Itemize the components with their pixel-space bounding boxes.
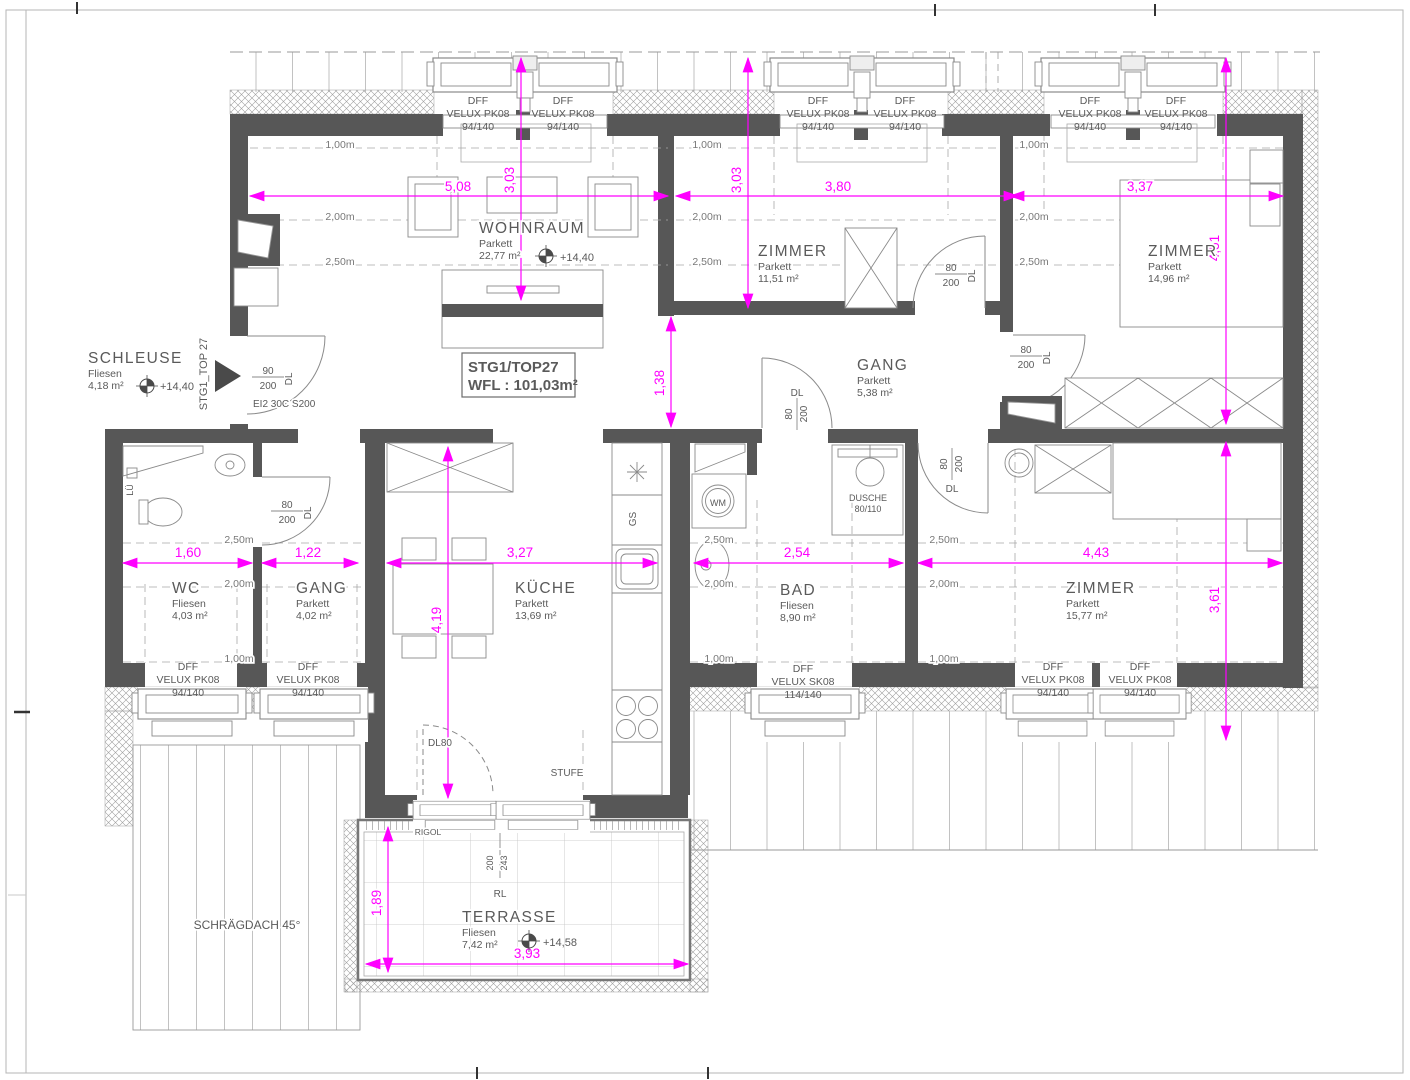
height-contour-label: 1,00m <box>1019 139 1048 151</box>
room-name: ZIMMER <box>758 243 828 260</box>
room-name: SCHLEUSE <box>88 350 183 367</box>
door-height: 200 <box>260 381 277 392</box>
height-contour-label: 2,50m <box>1019 256 1048 268</box>
dim-value: 4,19 <box>429 607 444 633</box>
window-label-line: VELUX PK08 <box>873 108 936 120</box>
room-label-zimmer-9: ZIMMERParkett15,77 m² <box>1066 580 1136 622</box>
room-label-kche-7: KÜCHEParkett13,69 m² <box>515 579 576 622</box>
door-height: 200 <box>799 405 810 422</box>
room-floor: Parkett <box>1148 261 1181 273</box>
room-area: 13,69 m² <box>515 610 557 622</box>
misc-label-12: 243 <box>499 855 509 870</box>
window-label-line: VELUX PK08 <box>276 674 339 686</box>
room-floor: Parkett <box>1066 598 1099 610</box>
room-area: 4,02 m² <box>296 610 332 622</box>
room-area: 8,90 m² <box>780 612 816 624</box>
window-label-line: DFF <box>298 661 318 673</box>
room-floor: Fliesen <box>462 927 496 939</box>
misc-label-7: LÜ <box>125 484 135 496</box>
room-label-zimmer-1: ZIMMERParkett11,51 m² <box>758 243 828 285</box>
height-contour-label: 2,50m <box>692 256 721 268</box>
room-area: 15,77 m² <box>1066 610 1108 622</box>
window-label-line: DFF <box>1130 661 1150 673</box>
room-floor: Fliesen <box>88 368 122 380</box>
room-area: 4,03 m² <box>172 610 208 622</box>
room-area: 7,42 m² <box>462 939 498 951</box>
room-floor: Parkett <box>857 375 890 387</box>
door-tag-2: 80200DL <box>935 263 978 289</box>
height-contour-label: 1,00m <box>704 653 733 665</box>
dim-v-3: 1,38 <box>652 317 671 427</box>
window-label-line: VELUX PK08 <box>446 108 509 120</box>
door-width: 80 <box>784 408 795 420</box>
door-width: 90 <box>262 366 274 377</box>
room-name: BAD <box>780 582 816 599</box>
window-label-line: 94/140 <box>1037 687 1069 699</box>
misc-label-8: STUFE <box>551 768 584 779</box>
door-type: DL <box>946 484 959 495</box>
window-label-line: VELUX PK08 <box>786 108 849 120</box>
window-label-line: DFF <box>553 95 573 107</box>
title-box: STG1/TOP27 WFL : 101,03m² <box>462 353 578 397</box>
door-height: 200 <box>279 515 296 526</box>
window-label-line: 94/140 <box>462 121 494 133</box>
room-floor: Parkett <box>296 598 329 610</box>
window-label-line: DFF <box>468 95 488 107</box>
unit-area: WFL : 101,03m² <box>468 377 578 394</box>
room-floor: Parkett <box>515 598 548 610</box>
misc-label-4: 80/110 <box>855 504 882 514</box>
door-type: DL <box>303 506 314 519</box>
dim-value: 3,61 <box>1207 587 1222 613</box>
room-name: GANG <box>857 357 908 374</box>
wc-fixtures <box>123 446 245 526</box>
window-label-line: VELUX PK08 <box>1058 108 1121 120</box>
door-type: DL <box>791 388 804 399</box>
window-label-line: 114/140 <box>784 689 821 701</box>
window-label-line: 94/140 <box>802 121 834 133</box>
door-type: DL <box>1042 351 1053 364</box>
level-value: +14,40 <box>160 381 194 393</box>
height-contour-label: 1,00m <box>325 139 354 151</box>
window-label-line: DFF <box>1080 95 1100 107</box>
window-label-line: DFF <box>178 661 198 673</box>
schraegdach-area <box>133 745 360 1030</box>
level-value: +14,58 <box>543 937 577 949</box>
door-tag-3: 80200DL <box>1010 345 1053 371</box>
height-contour-label: 2,00m <box>325 211 354 223</box>
room-label-gang-6: GANGParkett4,02 m² <box>296 580 347 622</box>
dim-value: 3,93 <box>514 946 540 961</box>
door-height: 200 <box>954 455 965 472</box>
height-contour-label: 2,50m <box>929 534 958 546</box>
dim-value: 3,27 <box>507 545 533 560</box>
room-area: 22,77 m² <box>479 250 521 262</box>
door-height: 200 <box>1018 360 1035 371</box>
insulation-right <box>1302 90 1318 688</box>
door-width: 80 <box>281 500 293 511</box>
dim-value: 5,08 <box>445 179 471 194</box>
window-label-line: 94/140 <box>1074 121 1106 133</box>
misc-label-2: DL80 <box>428 738 452 749</box>
misc-label-10: RL <box>494 889 507 900</box>
window-label-line: DFF <box>1043 661 1063 673</box>
window-label-line: VELUX PK08 <box>1108 674 1171 686</box>
zimmer3-furniture <box>1005 443 1281 551</box>
window-label-line: VELUX PK08 <box>1144 108 1207 120</box>
dim-value: 3,03 <box>502 167 517 193</box>
height-contour-label: 2,00m <box>704 578 733 590</box>
height-contour-label: 2,00m <box>692 211 721 223</box>
window-label-line: 94/140 <box>292 687 324 699</box>
window-label-line: VELUX PK08 <box>156 674 219 686</box>
window-label-line: 94/140 <box>1160 121 1192 133</box>
height-contour-label: 2,50m <box>224 534 253 546</box>
window-label-line: DFF <box>1166 95 1186 107</box>
window-label-line: DFF <box>895 95 915 107</box>
terrace-door-b <box>491 800 595 833</box>
window-label-line: VELUX SK08 <box>771 676 834 688</box>
room-label-wc-5: WCFliesen4,03 m² <box>172 580 208 622</box>
wall-east <box>1283 136 1303 688</box>
dim-h-4: 1,22 <box>262 545 358 563</box>
unit-id: STG1/TOP27 <box>468 359 559 376</box>
dim-value: 3,03 <box>729 167 744 193</box>
door-tag-1: 80200DL <box>271 500 314 526</box>
dim-value: 1,22 <box>295 545 321 560</box>
bad-fixtures <box>692 444 903 589</box>
room-label-bad-8: BADFliesen8,90 m² <box>780 582 816 624</box>
door-width: 80 <box>939 458 950 470</box>
window-label-line: VELUX PK08 <box>1021 674 1084 686</box>
door-type: DL <box>967 269 978 282</box>
misc-label-9: RIGOL <box>415 827 442 837</box>
misc-label-11: 200 <box>485 855 495 870</box>
room-label-schleuse-4: SCHLEUSEFliesen4,18 m²+14,40 <box>88 350 194 397</box>
level-value: +14,40 <box>560 252 594 264</box>
door-kueche-dashed <box>423 725 493 795</box>
window-label-line: VELUX PK08 <box>531 108 594 120</box>
level-marker-icon <box>136 375 158 397</box>
room-name: ZIMMER <box>1148 243 1218 260</box>
window-label-line: 94/140 <box>172 687 204 699</box>
misc-label-0: STG1_TOP 27 <box>198 338 210 410</box>
misc-label-3: DUSCHE <box>849 493 887 503</box>
door-height: 200 <box>943 278 960 289</box>
dim-h-1: 3,80 <box>676 179 1018 196</box>
room-name: WOHNRAUM <box>479 220 585 237</box>
freezer-icon <box>627 462 647 482</box>
dim-value: 3,37 <box>1127 179 1153 194</box>
dim-h-3: 1,60 <box>123 545 252 563</box>
window-label-line: DFF <box>808 95 828 107</box>
dim-value: 1,89 <box>369 890 384 916</box>
height-contour-label: 1,00m <box>224 653 253 665</box>
misc-label-13: SCHRÄGDACH 45° <box>194 918 301 932</box>
misc-label-5: WM <box>710 498 726 508</box>
height-contour-label: 2,50m <box>325 256 354 268</box>
misc-label-1: EI2 30C S200 <box>253 399 316 410</box>
room-floor: Parkett <box>758 261 791 273</box>
room-floor: Fliesen <box>172 598 206 610</box>
room-name: TERRASSE <box>462 909 557 926</box>
height-contour-label: 2,50m <box>704 534 733 546</box>
level-marker-icon <box>535 245 557 267</box>
dim-value: 3,80 <box>825 179 851 194</box>
window-label-line: DFF <box>793 663 813 675</box>
door-tag-5: 80200DL <box>939 448 965 495</box>
dim-value: 1,60 <box>175 545 201 560</box>
room-name: WC <box>172 580 201 597</box>
height-contour-label: 2,00m <box>1019 211 1048 223</box>
room-area: 14,96 m² <box>1148 273 1190 285</box>
window-label-line: 94/140 <box>547 121 579 133</box>
window-label-line: 94/140 <box>889 121 921 133</box>
door-zimmer3 <box>918 443 988 513</box>
dim-value: 4,43 <box>1083 545 1109 560</box>
room-floor: Fliesen <box>780 600 814 612</box>
height-contour-label: 1,00m <box>929 653 958 665</box>
door-width: 80 <box>945 263 957 274</box>
dim-value: 2,54 <box>784 545 811 560</box>
zimmer1-furniture <box>845 228 897 308</box>
room-floor: Parkett <box>479 238 512 250</box>
door-tag-4: 80200DL <box>784 388 810 430</box>
room-name: ZIMMER <box>1066 580 1136 597</box>
floorplan-drawing: STG1/TOP27 WFL : 101,03m² 5,083,803,371,… <box>0 0 1410 1080</box>
room-area: 5,38 m² <box>857 387 893 399</box>
door-tag-0: 90200DL <box>252 366 295 392</box>
room-name: GANG <box>296 580 347 597</box>
height-contour-label: 1,00m <box>692 139 721 151</box>
dim-value: 1,38 <box>652 370 667 396</box>
window-label-line: 94/140 <box>1124 687 1156 699</box>
floorplan-sheet: STG1/TOP27 WFL : 101,03m² 5,083,803,371,… <box>0 0 1410 1080</box>
terrace <box>344 818 708 992</box>
height-contour-label: 2,00m <box>929 578 958 590</box>
misc-label-6: GS <box>628 511 639 526</box>
room-area: 11,51 m² <box>758 273 799 285</box>
height-contour-label: 2,00m <box>224 578 253 590</box>
room-name: KÜCHE <box>515 579 576 597</box>
room-label-gang-3: GANGParkett5,38 m² <box>857 357 908 399</box>
room-area: 4,18 m² <box>88 380 124 392</box>
entrance-marker-triangle <box>215 360 241 392</box>
door-type: DL <box>284 372 295 385</box>
dim-h-7: 4,43 <box>918 545 1282 563</box>
room-label-wohnraum-0: WOHNRAUMParkett22,77 m²+14,40 <box>479 220 594 267</box>
insulation-band <box>230 90 434 114</box>
door-width: 80 <box>1020 345 1032 356</box>
